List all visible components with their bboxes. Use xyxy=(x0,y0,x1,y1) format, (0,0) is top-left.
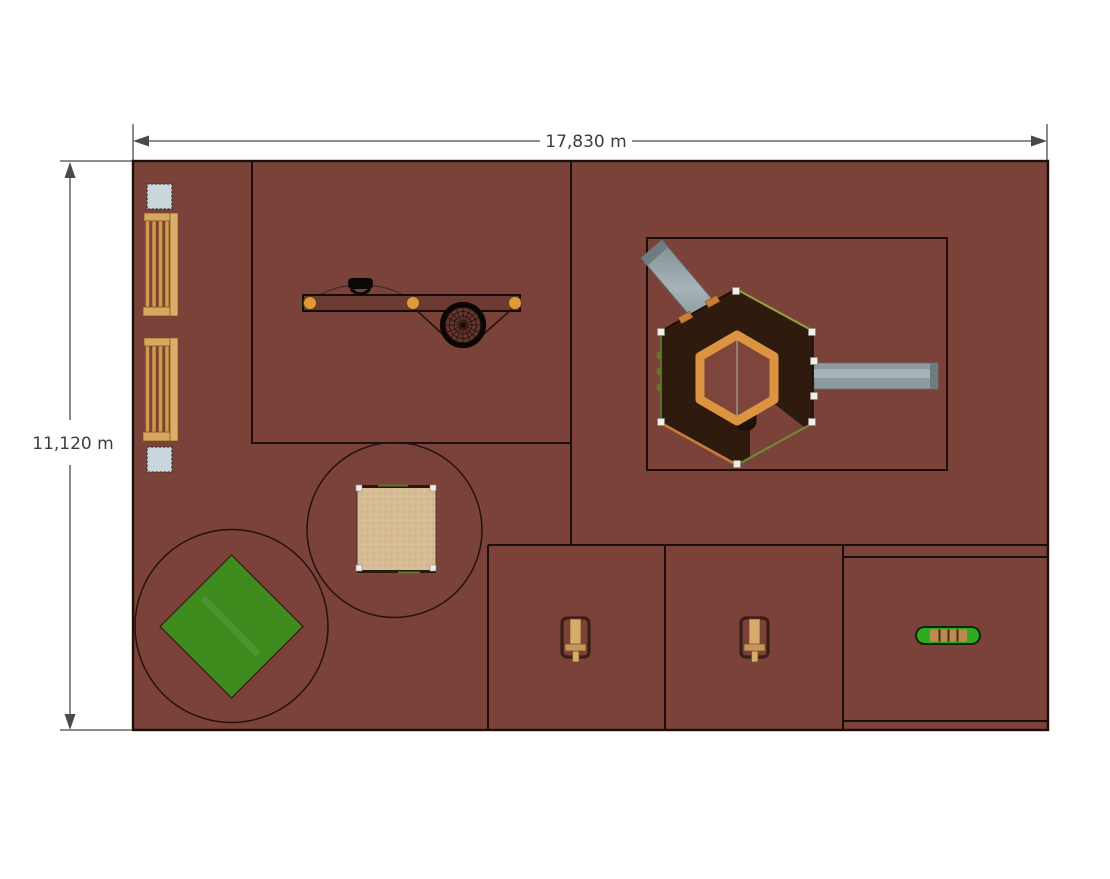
tower-post xyxy=(658,329,665,336)
slide-right-highlight xyxy=(814,369,930,378)
height-dimension-label: 11,120 m xyxy=(32,434,113,454)
spinner-hub xyxy=(460,322,465,327)
swing-seat xyxy=(348,278,373,289)
arrow-left-icon xyxy=(133,136,149,147)
width-dimension-label: 17,830 m xyxy=(545,132,626,152)
tower-post xyxy=(658,419,665,426)
bench-top xyxy=(143,213,178,316)
playground-plan-canvas: 17,830 m 11,120 m xyxy=(0,0,1110,879)
low-balance-beam xyxy=(916,627,980,644)
sandbox-post xyxy=(430,485,436,491)
beam-post-left xyxy=(304,297,317,310)
plan-drawing: 17,830 m 11,120 m xyxy=(0,0,1110,879)
arrow-down-icon xyxy=(65,714,76,730)
beam-post-right xyxy=(509,297,522,310)
arrow-right-icon xyxy=(1031,136,1047,147)
climb-hold xyxy=(657,368,661,375)
dimension-left: 11,120 m xyxy=(32,161,133,730)
tower-post xyxy=(734,461,741,468)
sandbox-post xyxy=(430,565,436,571)
square-table-bottom xyxy=(147,447,172,472)
dimension-top: 17,830 m xyxy=(133,124,1047,160)
sandbox-post xyxy=(356,485,362,491)
tower-post xyxy=(811,393,818,400)
tower-post xyxy=(811,358,818,365)
beam-post-middle xyxy=(407,297,420,310)
sandbox-post xyxy=(356,565,362,571)
climb-hold xyxy=(657,352,661,359)
tower-post xyxy=(809,419,816,426)
spinner-wheel xyxy=(443,305,484,346)
bench-bottom xyxy=(143,338,178,441)
square-table-top xyxy=(147,184,172,209)
climb-hold xyxy=(657,384,661,391)
sand-texture xyxy=(357,487,436,571)
slide-right-endcap xyxy=(930,363,938,389)
tower-post xyxy=(733,288,740,295)
tower-post xyxy=(809,329,816,336)
arrow-up-icon xyxy=(65,162,76,178)
